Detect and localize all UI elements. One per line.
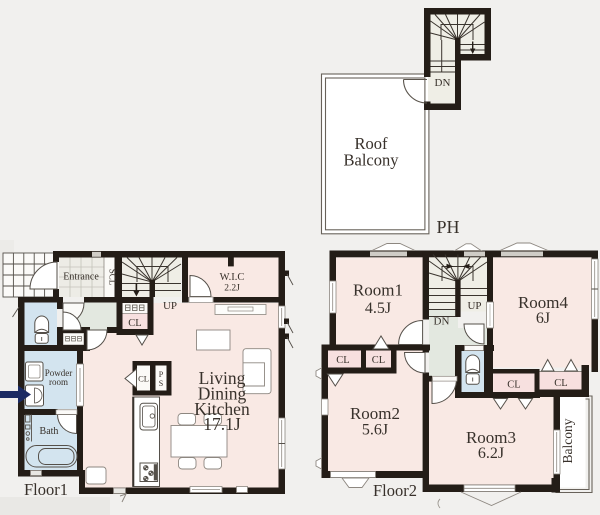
svg-text:SCL: SCL	[108, 269, 118, 286]
svg-text:Floor1: Floor1	[24, 480, 68, 499]
svg-text:6.2J: 6.2J	[478, 445, 504, 462]
svg-text:Entrance: Entrance	[63, 272, 99, 283]
svg-text:DN: DN	[434, 316, 450, 328]
svg-text:CL: CL	[336, 355, 349, 366]
svg-text:5.6J: 5.6J	[362, 422, 388, 439]
svg-text:DN: DN	[435, 77, 451, 89]
svg-text:P: P	[159, 370, 164, 379]
svg-text:UP: UP	[163, 300, 177, 312]
svg-text:2.2J: 2.2J	[224, 284, 240, 294]
svg-text:S: S	[159, 379, 163, 388]
svg-text:CL: CL	[372, 355, 385, 366]
svg-text:17.1J: 17.1J	[203, 414, 241, 434]
svg-text:Room2: Room2	[350, 404, 400, 423]
svg-text:Balcony: Balcony	[344, 151, 400, 170]
svg-text:CL: CL	[138, 374, 149, 384]
svg-text:CL: CL	[554, 378, 567, 389]
svg-text:6J: 6J	[536, 310, 550, 327]
svg-text:W.I.C: W.I.C	[220, 272, 245, 283]
svg-text:UP: UP	[467, 300, 481, 312]
svg-text:room: room	[49, 377, 68, 387]
svg-text:CL: CL	[507, 380, 520, 391]
svg-text:4.5J: 4.5J	[365, 300, 391, 317]
svg-text:Floor2: Floor2	[373, 481, 417, 500]
svg-text:Bath: Bath	[40, 426, 59, 437]
svg-text:PH: PH	[436, 217, 459, 237]
svg-text:Room1: Room1	[353, 281, 403, 300]
svg-text:CL: CL	[128, 318, 141, 329]
svg-text:Balcony: Balcony	[560, 418, 575, 463]
